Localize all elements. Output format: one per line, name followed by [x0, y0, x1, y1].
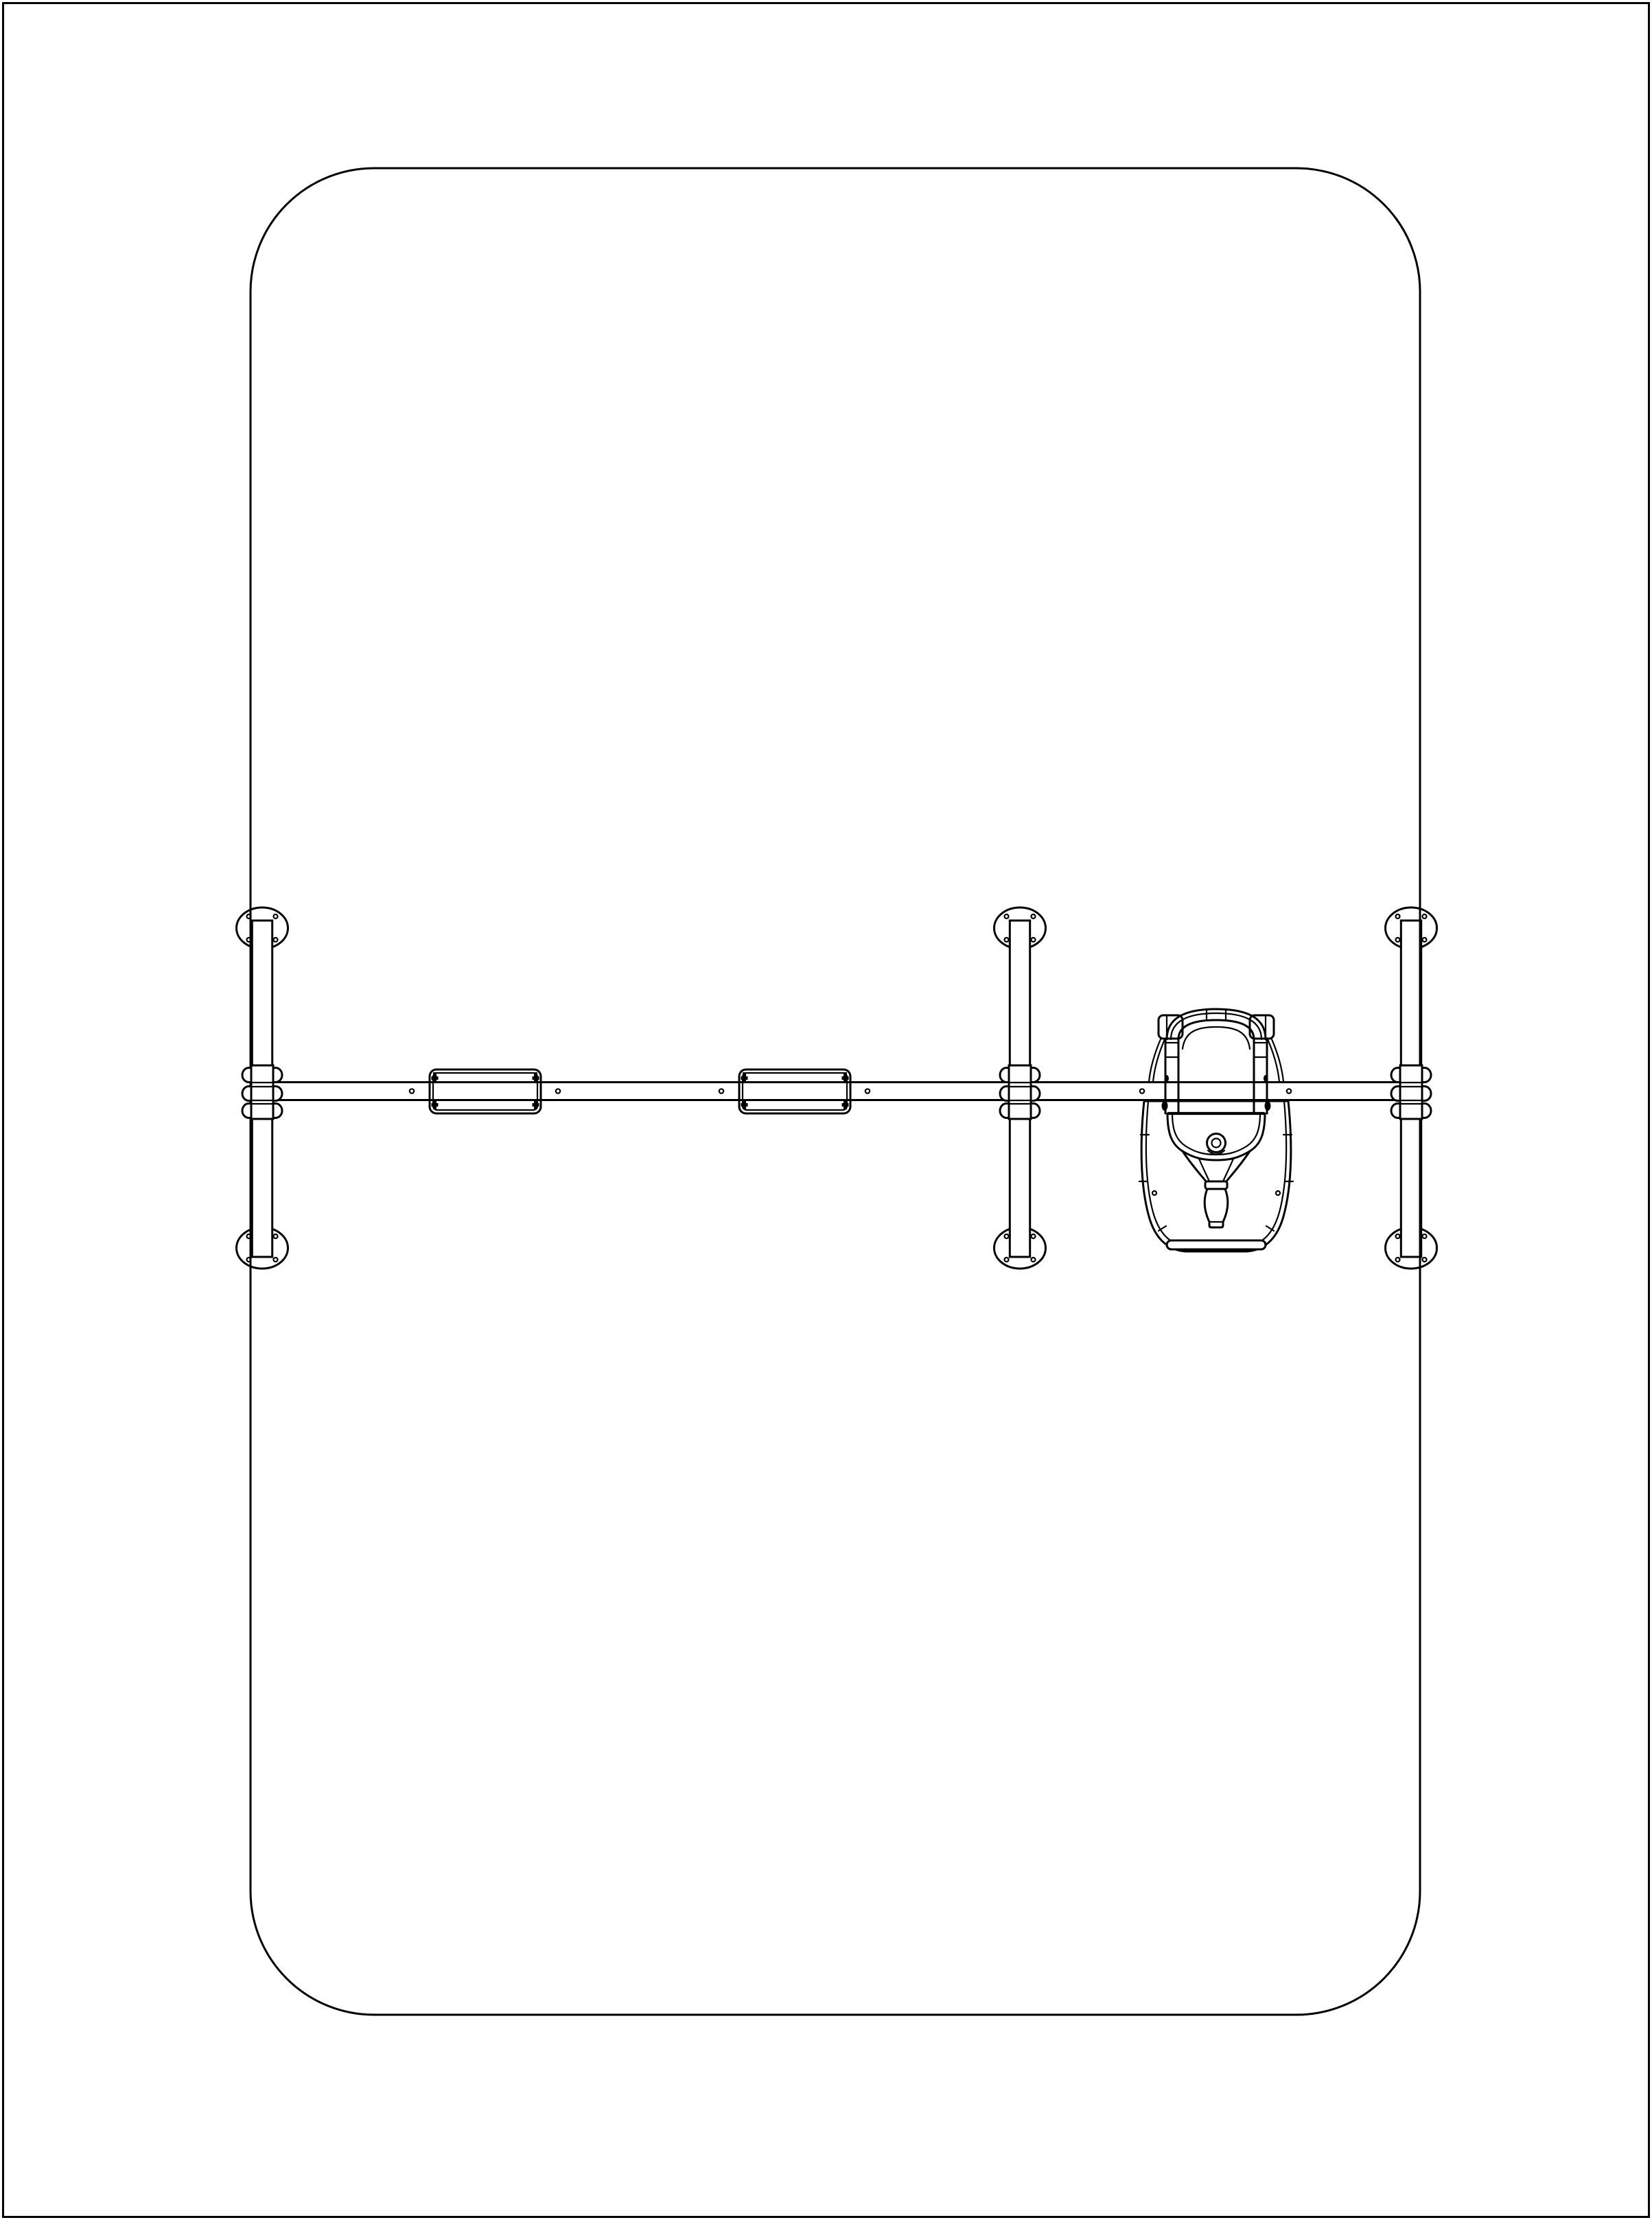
post-2-lug-left-1 — [1000, 1068, 1010, 1083]
bucket-hanger-bolt-right-bottom — [1265, 1101, 1271, 1111]
post-2-lug-right-1 — [1031, 1068, 1040, 1083]
flange-bolt-hole — [1396, 1234, 1400, 1238]
bucket-flare-left-inner — [1153, 1039, 1165, 1082]
post-3-lug-right-2 — [1422, 1087, 1432, 1101]
belt-seat-2 — [739, 1069, 850, 1113]
beam-hole — [556, 1089, 560, 1093]
post-2-lug-left-2 — [1000, 1087, 1010, 1101]
belt-seat-1 — [430, 1069, 541, 1113]
post-3-lug-left-3 — [1391, 1104, 1401, 1118]
post-1-lug-right-1 — [273, 1068, 283, 1083]
seat-outline — [430, 1069, 541, 1113]
flange-bolt-hole — [274, 938, 278, 942]
beam-hole — [865, 1089, 870, 1093]
post-2-clamp-body — [1009, 1065, 1031, 1119]
flange-bolt-hole — [1032, 1258, 1036, 1262]
flange-bolt-hole — [1396, 938, 1400, 942]
post-1-lug-left-2 — [242, 1087, 252, 1101]
post-1-lug-right-3 — [273, 1104, 283, 1118]
seat-back-arc-inner — [1178, 1020, 1254, 1039]
flange-bolt-hole — [1396, 1258, 1400, 1262]
flange-bolt-hole — [1032, 1234, 1036, 1238]
beam-hole — [410, 1089, 414, 1093]
post-2-leg-top — [1010, 921, 1029, 1065]
post-1-lug-left-1 — [242, 1068, 252, 1083]
flange-bolt-hole — [1396, 914, 1400, 918]
bucket-front-lip — [1167, 1240, 1266, 1249]
flange-bolt-hole — [1005, 914, 1009, 918]
flange-bolt-hole — [1423, 938, 1427, 942]
post-1-leg-bottom — [252, 1119, 272, 1257]
flange-bolt-hole — [1005, 1258, 1009, 1262]
bucket-shell-outer — [1141, 1101, 1291, 1251]
bucket-flare-right-inner — [1268, 1039, 1279, 1082]
post-2-leg-bottom — [1010, 1119, 1029, 1257]
post-1-leg-top — [252, 921, 272, 1065]
bucket-flare-left-outer — [1149, 1039, 1161, 1082]
post-3-lug-left-1 — [1391, 1068, 1401, 1083]
flange-bolt-hole — [1423, 1234, 1427, 1238]
post-3-lug-right-3 — [1422, 1104, 1432, 1118]
beam-hole — [1287, 1089, 1291, 1093]
post-1-lug-left-3 — [242, 1104, 252, 1118]
post-3-lug-left-2 — [1391, 1087, 1401, 1101]
shell-dot-left — [1152, 1191, 1156, 1195]
crotch-post-cap — [1205, 1181, 1227, 1189]
flange-bolt-hole — [1005, 1234, 1009, 1238]
seat-back-edge — [1183, 1027, 1250, 1049]
post-3-leg-bottom — [1401, 1119, 1421, 1257]
post-3-leg-top — [1401, 921, 1421, 1065]
post-2-lug-right-2 — [1031, 1087, 1040, 1101]
flange-bolt-hole — [274, 914, 278, 918]
bucket-seat — [1139, 1009, 1293, 1251]
beam-hole — [1140, 1089, 1144, 1093]
drawing-sheet — [0, 0, 1652, 2220]
flange-bolt-hole — [1005, 938, 1009, 942]
beam-hole — [719, 1089, 723, 1093]
bucket-hanger-bolt-right-top — [1264, 1075, 1268, 1082]
flange-bolt-hole — [1032, 914, 1036, 918]
post-1-lug-right-2 — [273, 1087, 283, 1101]
plan-view-svg — [0, 0, 1652, 2220]
bucket-flare-right-outer — [1272, 1039, 1283, 1082]
flange-bolt-hole — [1423, 914, 1427, 918]
bucket-hanger-bolt-left-bottom — [1162, 1101, 1168, 1111]
bucket-ring-inner — [1212, 1139, 1221, 1148]
post-2-lug-left-3 — [1000, 1104, 1010, 1118]
seat-outline — [739, 1069, 850, 1113]
post-3-lug-right-1 — [1422, 1068, 1432, 1083]
flange-bolt-hole — [274, 1258, 278, 1262]
flange-bolt-hole — [274, 1234, 278, 1238]
post-1-clamp-body — [251, 1065, 273, 1119]
flange-bolt-hole — [1032, 938, 1036, 942]
bucket-hanger-bolt-left-top — [1165, 1075, 1169, 1082]
post-2-lug-right-3 — [1031, 1104, 1040, 1118]
post-3-clamp-body — [1400, 1065, 1422, 1119]
flange-bolt-hole — [1423, 1258, 1427, 1262]
shell-dot-right — [1276, 1191, 1280, 1195]
